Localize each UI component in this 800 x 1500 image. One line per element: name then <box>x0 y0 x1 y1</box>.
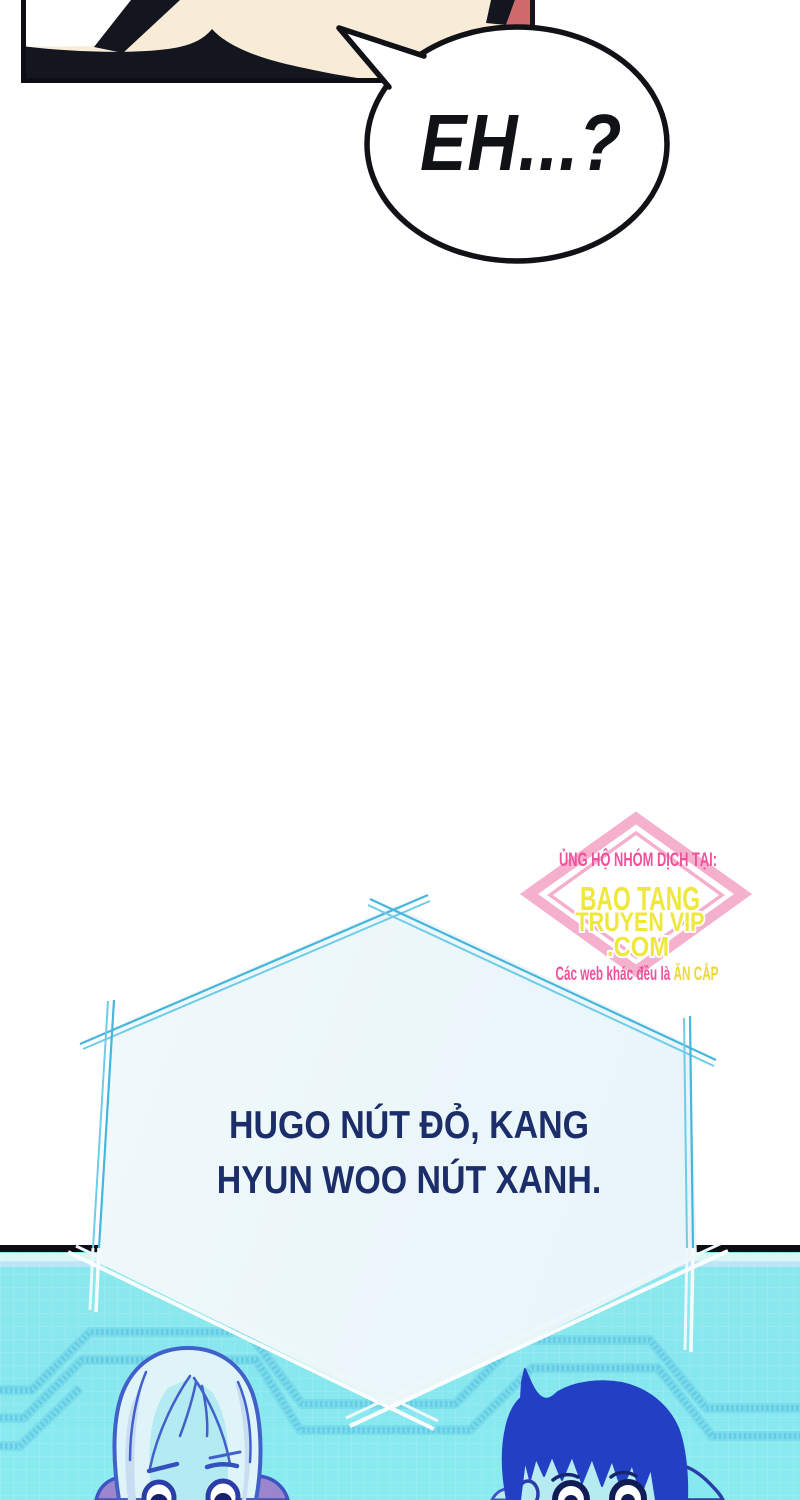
svg-text:Các web khác đều là ĂN CẮP: Các web khác đều là ĂN CẮP <box>556 963 719 985</box>
svg-text:.COM: .COM <box>607 931 669 962</box>
svg-text:ỦNG HỘ NHÓM DỊCH TẠI:: ỦNG HỘ NHÓM DỊCH TẠI: <box>559 847 717 871</box>
